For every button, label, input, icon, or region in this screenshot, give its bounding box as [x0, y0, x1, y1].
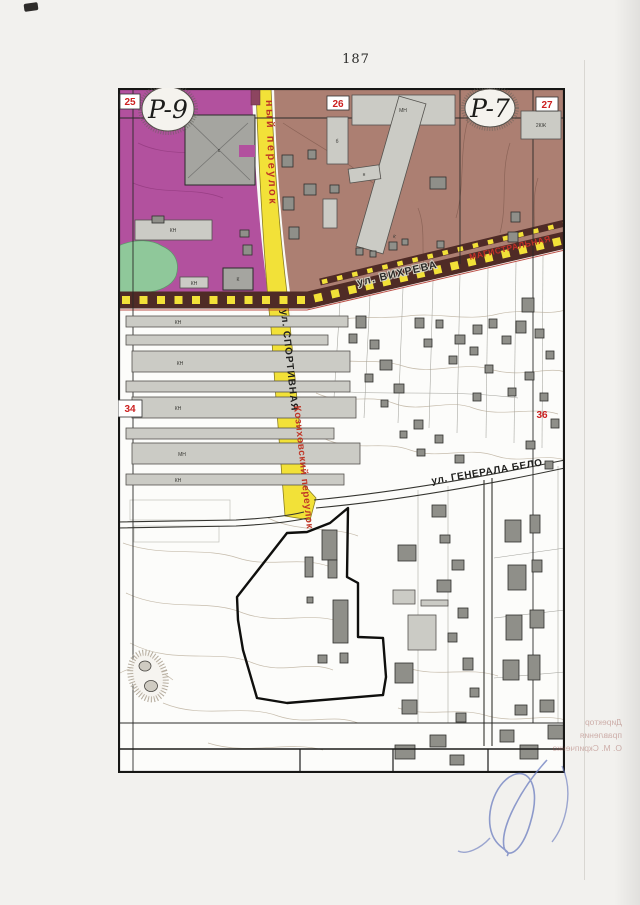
svg-text:КН: КН: [170, 228, 177, 234]
grid-number-25: 25: [120, 94, 140, 109]
residential-mid-buildings: [349, 298, 559, 469]
street-label-belova: ул. ГЕНЕРАЛА БЕЛО: [431, 458, 544, 487]
svg-text:МН: МН: [399, 108, 407, 114]
svg-text:КН: КН: [175, 406, 182, 412]
svg-text:26: 26: [332, 99, 344, 110]
parcel-boundary: [237, 508, 386, 703]
svg-text:КН: КН: [175, 478, 182, 484]
grid-number-26: 26: [327, 96, 349, 110]
svg-text:34: 34: [124, 404, 136, 415]
svg-text:КН: КН: [191, 281, 198, 287]
svg-text:КН: КН: [177, 361, 184, 367]
grid-number-36: 36: [536, 410, 548, 421]
show-through-text: Директор правления О. М. Скрипченко: [462, 716, 622, 754]
page-number: 187: [342, 52, 370, 67]
grid-number-34: 34: [118, 400, 142, 417]
svg-text:25: 25: [124, 97, 136, 108]
page-fold-line: [584, 60, 585, 880]
svg-text:б: б: [336, 139, 339, 145]
svg-text:2КЖ: 2КЖ: [536, 123, 547, 129]
page-edge-shadow: [614, 0, 640, 905]
scan-artifact: [24, 2, 39, 12]
barracks-buildings: [126, 316, 360, 485]
road-end-block: [251, 88, 260, 105]
svg-text:P-9: P-9: [147, 95, 188, 124]
svg-text:МН: МН: [178, 452, 186, 458]
svg-text:P-7: P-7: [469, 94, 510, 123]
map: P-9 P-7 25 26 27 34: [118, 88, 565, 773]
parcel-buildings: [305, 530, 348, 663]
zone-label-p7: P-7: [463, 88, 517, 129]
signature: [452, 752, 602, 867]
svg-text:КН: КН: [175, 320, 182, 326]
svg-text:27: 27: [541, 100, 553, 111]
grid-number-27: 27: [536, 97, 558, 111]
svg-text:н: н: [363, 172, 366, 178]
svg-text:К: К: [237, 277, 240, 283]
mound-symbol: [124, 648, 171, 704]
scanned-map-page: 187: [0, 0, 640, 905]
